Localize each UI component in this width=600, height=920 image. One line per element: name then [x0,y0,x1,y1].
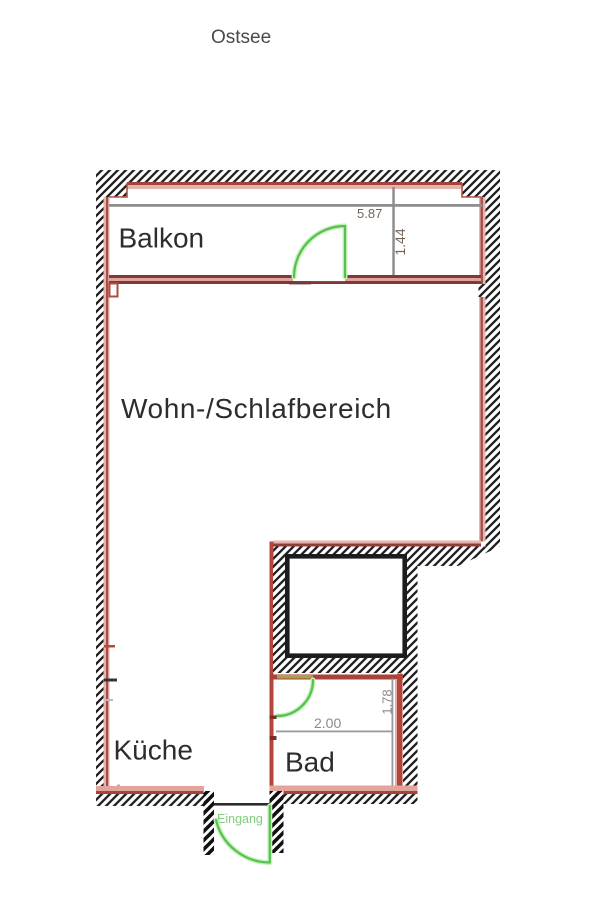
svg-text:Wohn-/Schlafbereich: Wohn-/Schlafbereich [121,393,392,424]
svg-text:Bad: Bad [285,747,335,778]
svg-text:1.78: 1.78 [380,689,395,714]
svg-text:Balkon: Balkon [119,223,205,254]
svg-text:1.44: 1.44 [392,228,408,255]
svg-text:Küche: Küche [114,735,193,766]
svg-text:2.00: 2.00 [314,715,341,731]
svg-text:5.87: 5.87 [357,206,382,221]
svg-text:Eingang: Eingang [217,812,263,826]
svg-text:Ostsee: Ostsee [211,27,271,48]
